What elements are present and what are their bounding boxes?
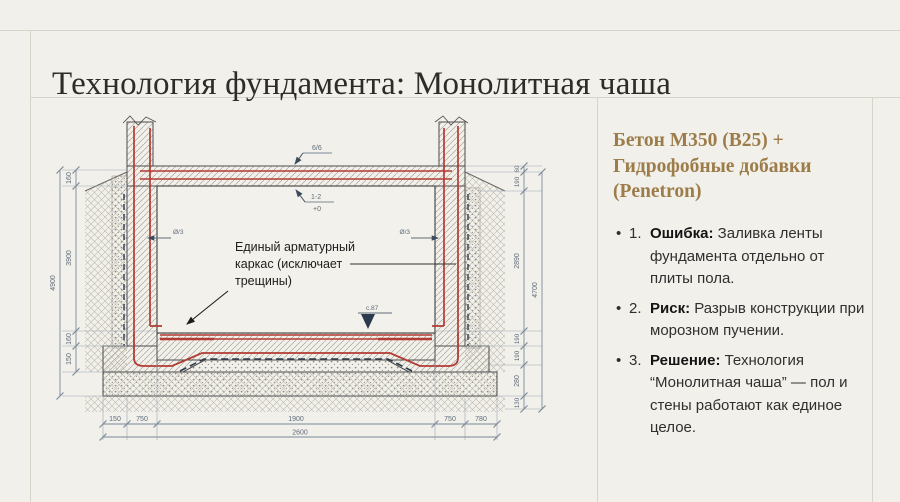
right-wall-base (435, 346, 489, 372)
svg-text:4700: 4700 (532, 282, 539, 298)
list-item: • 2. Риск: Разрыв конструкции при морозн… (613, 298, 865, 343)
svg-text:750: 750 (444, 416, 456, 423)
svg-text:130: 130 (514, 397, 521, 408)
foundation-section-drawing: 160 3900 160 150 4900 60 190 2890 190 19… (30, 97, 597, 494)
floor-slab (157, 333, 435, 360)
list-item: • 3. Решение: Технология “Монолитная чаш… (613, 350, 865, 440)
gravel-bed (183, 360, 409, 372)
svg-text:160: 160 (66, 333, 73, 345)
item-term: Ошибка: (650, 225, 714, 242)
svg-text:2890: 2890 (514, 253, 521, 269)
left-wall-base (103, 346, 157, 372)
svg-text:280: 280 (514, 375, 521, 387)
frame-top-line (0, 30, 900, 31)
svg-text:160: 160 (66, 172, 73, 184)
svg-text:150: 150 (109, 416, 121, 423)
svg-text:трещины): трещины) (235, 274, 292, 288)
svg-text:4900: 4900 (50, 275, 57, 291)
rebar-callout-right: Ø/3 (400, 229, 411, 236)
frame-right-line (872, 97, 873, 502)
svg-text:каркас (исключает: каркас (исключает (235, 257, 342, 271)
svg-text:60: 60 (514, 165, 521, 172)
info-panel: Бетон М350 (В25) + Гидрофобные добавки (… (613, 128, 865, 447)
panel-heading: Бетон М350 (В25) + Гидрофобные добавки (… (613, 128, 865, 205)
floor-mark: с.87 (366, 305, 379, 312)
top-slab (127, 166, 465, 186)
svg-text:3900: 3900 (66, 250, 73, 266)
svg-text:190: 190 (514, 333, 521, 344)
panel-divider-line (597, 97, 598, 502)
bullet-dot: • (616, 298, 621, 321)
svg-text:150: 150 (66, 353, 73, 365)
svg-text:750: 750 (136, 416, 148, 423)
item-number: 2. (629, 298, 642, 321)
svg-text:Единый арматурный: Единый арматурный (235, 240, 355, 254)
right-wall (435, 186, 465, 346)
svg-text:190: 190 (514, 176, 521, 187)
rebar-callout-left: Ø/3 (173, 229, 184, 236)
list-item: • 1. Ошибка: Заливка ленты фундамента от… (613, 223, 865, 291)
left-wall-stub (127, 122, 153, 166)
bullet-dot: • (616, 350, 621, 373)
item-term: Решение: (650, 352, 720, 369)
svg-text:780: 780 (475, 416, 487, 423)
svg-text:190: 190 (514, 350, 521, 361)
level-mark-mid: 1-2 (311, 194, 321, 201)
level-mark-mid-value: +0 (313, 206, 321, 213)
right-wall-stub (439, 122, 465, 166)
footing-pad (103, 372, 497, 396)
bullet-dot: • (616, 223, 621, 246)
bullet-list: • 1. Ошибка: Заливка ленты фундамента от… (613, 223, 865, 440)
item-term: Риск: (650, 300, 690, 317)
item-number: 3. (629, 350, 642, 373)
item-number: 1. (629, 223, 642, 246)
left-wall (127, 186, 157, 346)
svg-text:2600: 2600 (292, 430, 308, 437)
subsoil-band (85, 396, 505, 412)
level-mark-top: 6/6 (312, 145, 322, 152)
svg-text:1900: 1900 (288, 416, 304, 423)
